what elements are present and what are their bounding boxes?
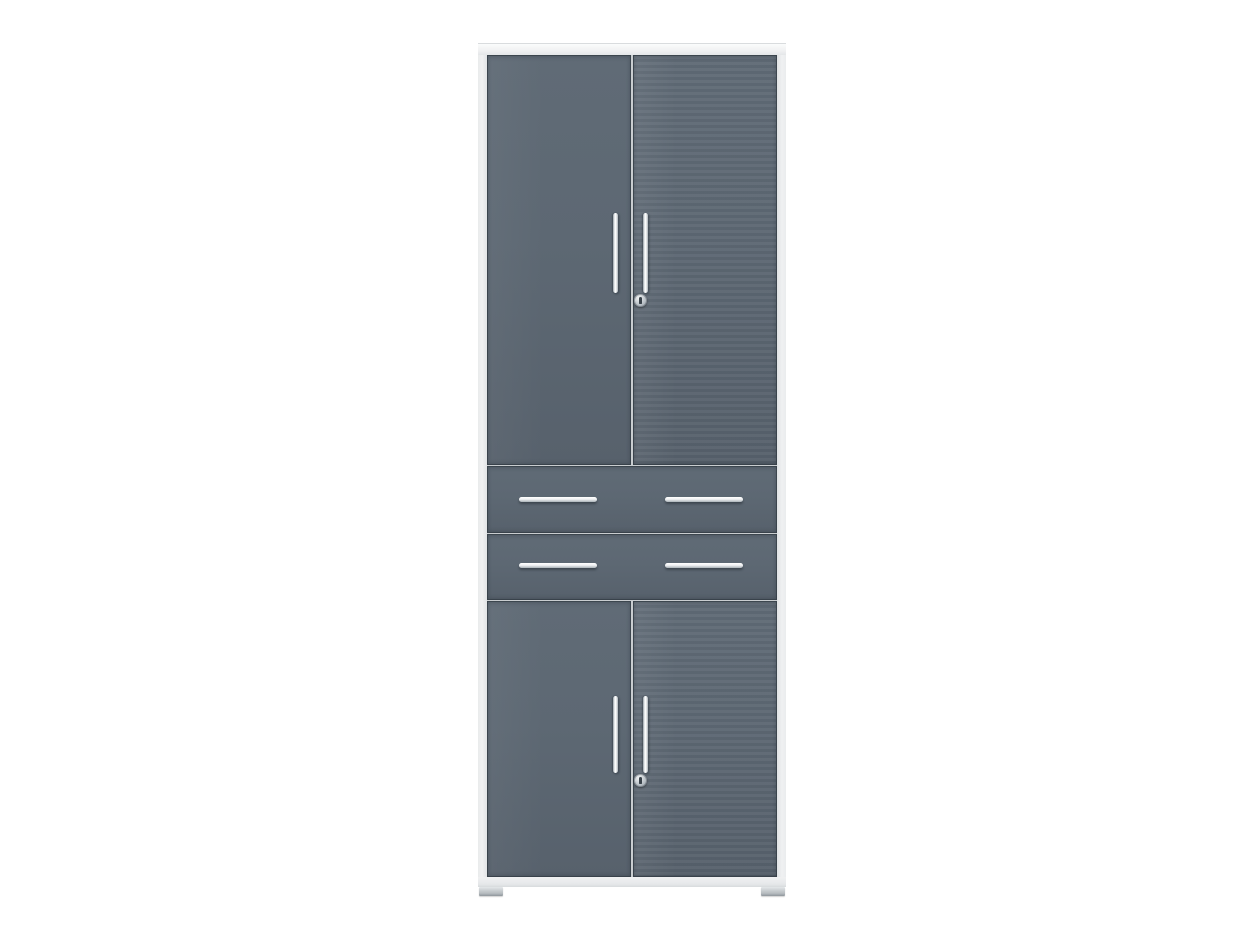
lower-door-lock xyxy=(634,774,647,787)
keyhole-icon xyxy=(639,297,642,304)
upper-right-door-handle xyxy=(643,213,648,293)
lower-left-door-handle xyxy=(613,696,618,773)
upper-door-section xyxy=(487,55,777,465)
drawer-2-right-handle xyxy=(665,563,743,568)
drawer-2-left-handle xyxy=(519,563,597,568)
cabinet-right-foot xyxy=(761,887,785,896)
drawer-2-front xyxy=(487,534,777,600)
keyhole-icon xyxy=(639,777,642,784)
drawer-1-front xyxy=(487,466,777,533)
cabinet-left-side-panel xyxy=(478,55,487,877)
cabinet-left-foot xyxy=(479,887,503,896)
upper-left-door xyxy=(487,55,631,465)
lower-right-door-handle xyxy=(643,696,648,773)
drawer-row-2 xyxy=(487,534,777,600)
upper-left-door-handle xyxy=(613,213,618,293)
drawer-1-right-handle xyxy=(665,497,743,502)
product-photo-background: Tall anthracite grey office cabinet with… xyxy=(0,0,1253,940)
drawer-row-1 xyxy=(487,466,777,533)
lower-door-section xyxy=(487,601,777,877)
drawer-1-left-handle xyxy=(519,497,597,502)
lower-left-door xyxy=(487,601,631,877)
office-cabinet: Tall anthracite grey office cabinet with… xyxy=(478,44,786,897)
lower-right-door xyxy=(633,601,777,877)
upper-right-door xyxy=(633,55,777,465)
upper-door-lock xyxy=(634,294,647,307)
cabinet-right-side-panel xyxy=(777,55,786,877)
cabinet-plinth xyxy=(478,877,786,887)
